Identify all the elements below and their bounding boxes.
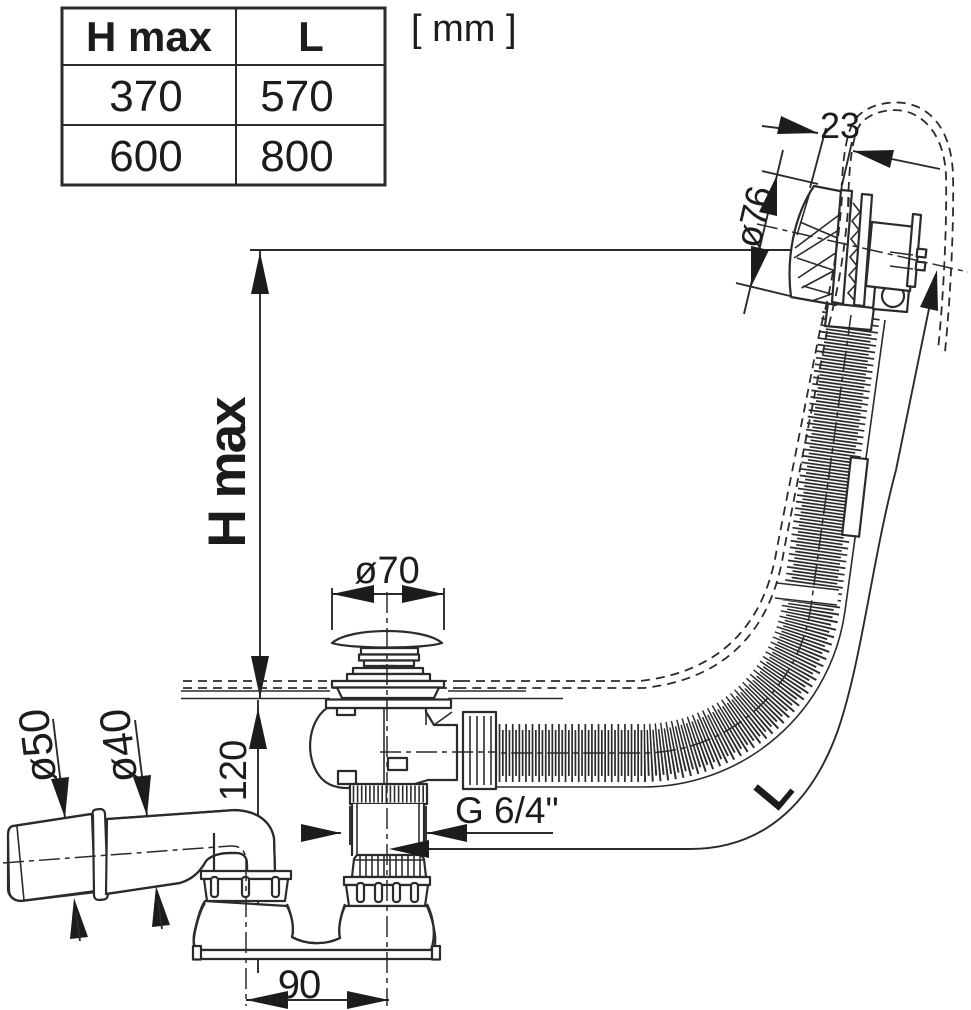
svg-text:[ mm ]: [ mm ] — [411, 8, 517, 50]
svg-text:370: 370 — [109, 72, 182, 121]
svg-text:90: 90 — [278, 963, 321, 1007]
svg-text:120: 120 — [213, 741, 255, 801]
svg-text:800: 800 — [260, 132, 333, 181]
svg-text:H max: H max — [86, 13, 213, 60]
svg-text:23: 23 — [820, 105, 860, 146]
svg-text:ø50: ø50 — [10, 706, 67, 785]
svg-text:H max: H max — [198, 396, 257, 548]
svg-text:600: 600 — [109, 132, 182, 181]
svg-text:ø40: ø40 — [91, 706, 148, 785]
svg-text:L: L — [298, 13, 324, 60]
svg-text:570: 570 — [260, 72, 333, 121]
svg-text:ø70: ø70 — [354, 550, 419, 592]
svg-text:G 6/4": G 6/4" — [455, 790, 559, 831]
